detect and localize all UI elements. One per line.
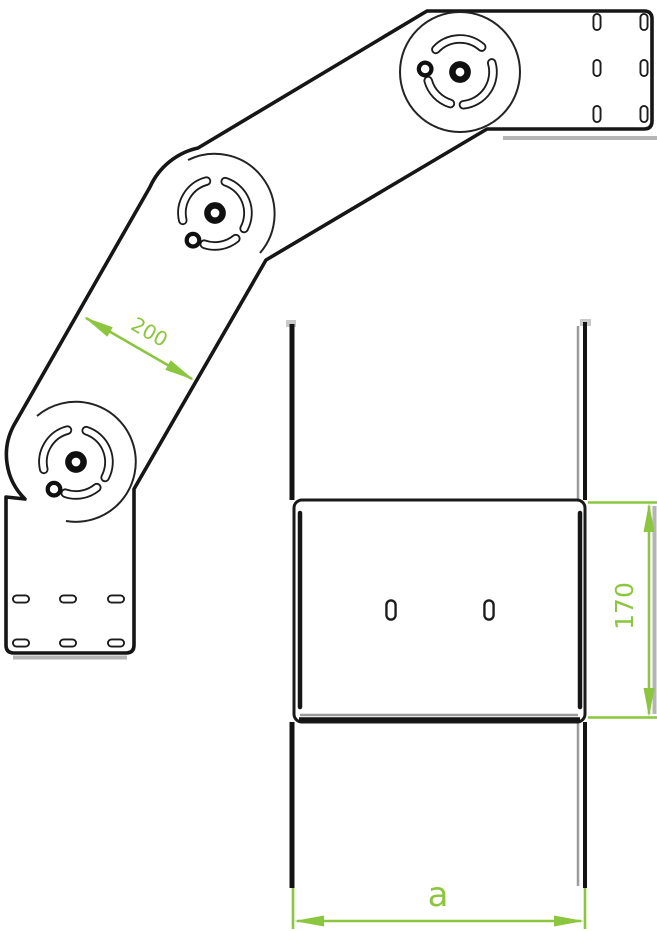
plan-view-fitting: 170 a [286,319,657,929]
arrowhead-icon [294,916,324,927]
bend-fitting-drawing: 200 170 [0,0,657,931]
technical-drawing-canvas: 200 170 [0,0,657,931]
dimension-label-a: a [428,875,449,915]
arrowhead-icon [554,916,584,927]
dimension-label-170: 170 [610,582,639,630]
dimension-170: 170 [588,503,657,718]
dimension-a: a [293,875,585,929]
fitting-body [294,500,585,722]
